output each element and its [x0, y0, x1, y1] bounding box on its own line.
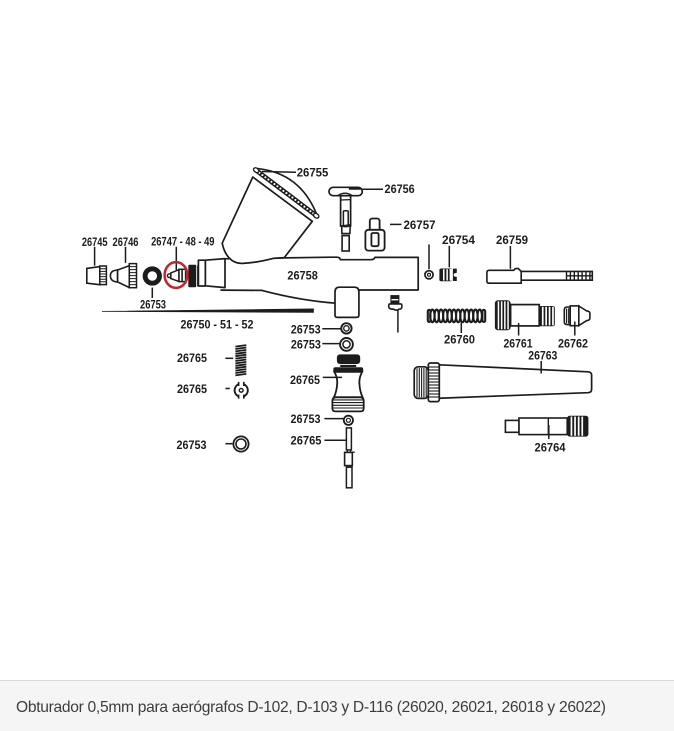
svg-text:26746: 26746: [113, 235, 139, 249]
svg-text:26753: 26753: [140, 298, 166, 312]
svg-text:26756: 26756: [385, 182, 415, 196]
svg-text:26765: 26765: [291, 434, 322, 448]
svg-text:26755: 26755: [297, 166, 329, 180]
svg-text:26753: 26753: [291, 412, 321, 426]
svg-text:26750 - 51 - 52: 26750 - 51 - 52: [181, 318, 254, 332]
svg-text:26753: 26753: [177, 438, 207, 452]
svg-text:26765: 26765: [177, 382, 207, 396]
svg-text:26747 - 48 - 49: 26747 - 48 - 49: [151, 235, 215, 249]
svg-text:26758: 26758: [287, 268, 318, 282]
svg-text:26745: 26745: [82, 235, 108, 249]
svg-text:26753: 26753: [291, 323, 321, 337]
svg-text:26762: 26762: [558, 336, 588, 350]
svg-text:26763: 26763: [528, 348, 557, 362]
svg-text:26757: 26757: [404, 218, 436, 232]
svg-text:26754: 26754: [442, 233, 475, 247]
svg-text:26764: 26764: [535, 441, 566, 455]
svg-text:26753: 26753: [291, 337, 321, 351]
svg-text:26765: 26765: [290, 373, 320, 387]
svg-text:26765: 26765: [177, 351, 207, 365]
svg-text:26759: 26759: [496, 233, 528, 247]
svg-text:26760: 26760: [444, 333, 475, 347]
